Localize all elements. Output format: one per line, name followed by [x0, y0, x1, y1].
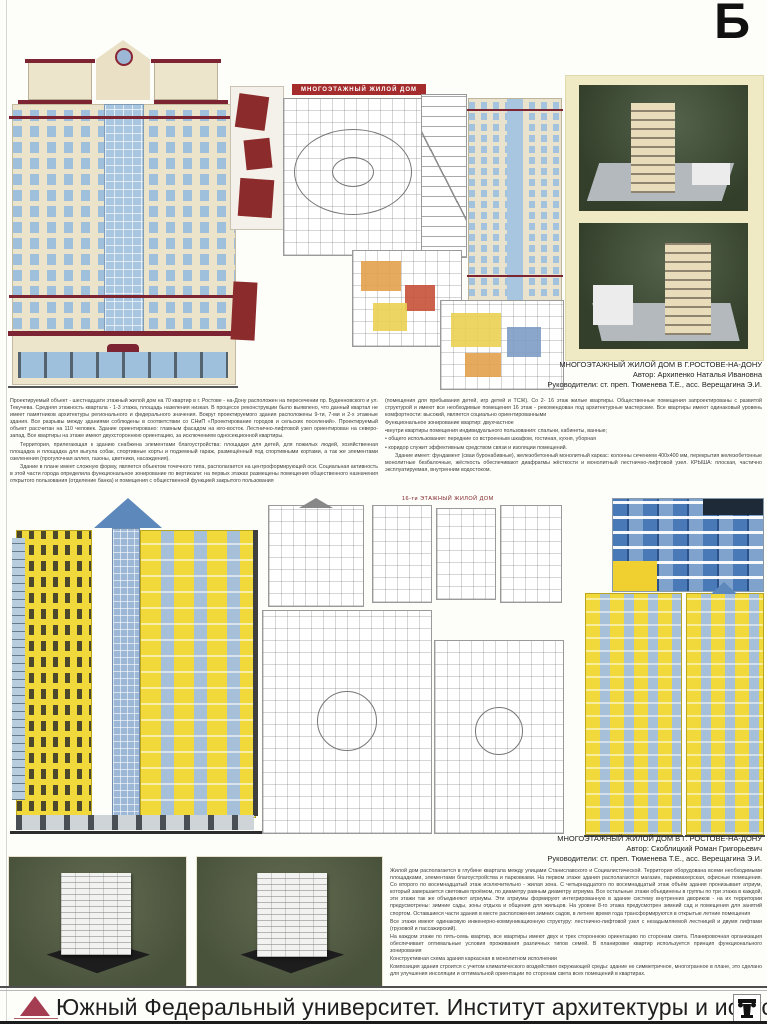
plan-patch-yellow [373, 303, 407, 331]
paragraph: Здание имеет: фундамент (сваи буронабивн… [385, 453, 762, 474]
red-band-upper [9, 116, 237, 119]
right-tower-facade [140, 530, 256, 818]
shadow-edge [253, 530, 258, 816]
secondary-glass-shaft [507, 99, 523, 311]
atrium-circle [475, 707, 523, 755]
left-tower-facade [16, 530, 92, 818]
model-tower [61, 873, 131, 955]
project1-description-col2: (помещения для пребывания детей, игр дет… [385, 398, 762, 475]
site-plan-drawing [230, 86, 284, 230]
facade-fragment-photo [612, 498, 764, 592]
bullet-item: • коридор служит эффективным средством с… [385, 445, 762, 452]
typical-floor-plan-drawing [283, 98, 423, 256]
paragraph: Композиция здания строится с учетом клим… [390, 964, 762, 978]
bullet-item: • общего использования: передние со встр… [385, 436, 762, 443]
balcony-stack [12, 538, 25, 800]
project1-description-col1: Проектируемый объект - шестнадцати этажн… [10, 398, 378, 486]
small-plan-drawing [436, 508, 496, 600]
red-band [467, 109, 563, 111]
entrance-awning [107, 344, 139, 352]
project2-main-elevation-drawing [12, 498, 258, 834]
paragraph: Жилой дом располагается в глубине кварта… [390, 868, 762, 918]
building-section-drawing [268, 505, 364, 607]
elevation-left-wing [28, 62, 92, 100]
footer-university-title: Южный Федеральный университет. Институт … [56, 994, 767, 1021]
paragraph: Функциональное зонирование квартир: двух… [385, 420, 762, 427]
central-glass-shaft [112, 528, 140, 820]
detail-fragment-red [230, 281, 257, 340]
sfu-logo-icon [20, 996, 50, 1016]
model-tower [257, 873, 327, 957]
model-tower [631, 103, 675, 193]
red-band [467, 275, 563, 277]
elevation-right-wing [154, 62, 218, 100]
scan-edge-line [6, 0, 7, 1024]
project1-main-elevation-drawing [12, 40, 234, 390]
plan-patch-red [405, 285, 435, 311]
site-plan-block [235, 93, 269, 131]
model-low-block [593, 285, 633, 325]
base-canopy [8, 331, 238, 336]
glass-pyramid-roof [94, 498, 162, 528]
architecture-institute-icon [733, 994, 761, 1022]
paragraph: Территория, прилегающая к зданию снабжен… [10, 442, 378, 463]
section-roof-triangle [299, 498, 333, 508]
glass-pyramid-roof [711, 582, 737, 594]
plan-core-outline [332, 157, 374, 187]
presentation-board: Б МНОГОЭТАЖНЫЙ ЖИЛОЙ ДОМ [0, 0, 767, 1024]
paragraph: Все этажи имеют одинаковую инженерно-ком… [390, 919, 762, 933]
fragment-yellow-wall [613, 561, 657, 591]
project2-title: МНОГОЭТАЖНЫЙ ЖИЛОЙ ДОМ В Г. РОСТОВЕ-НА-Д… [362, 834, 762, 844]
stair-section-drawing [421, 94, 467, 258]
atrium-circle [317, 691, 377, 751]
model-tower [665, 243, 711, 335]
project2-model-photo-left [8, 856, 187, 987]
project2-supervisors: Руководители: ст. преп. Тюменева Т.Е., а… [362, 854, 762, 864]
paragraph: Конструктивная схема здания каркасная в … [390, 956, 762, 963]
facade-emblem [115, 48, 133, 66]
ground-floor-strip [16, 815, 254, 830]
ground-line [10, 831, 262, 834]
model-photo-top [579, 85, 748, 211]
footer-divider-light [0, 990, 767, 991]
project2-model-photo-right [196, 856, 383, 987]
storefront-glazing [18, 352, 228, 378]
project2-description: Жилой дом располагается в глубине кварта… [390, 868, 762, 979]
model-low-block [692, 163, 730, 185]
project2-caption: МНОГОЭТАЖНЫЙ ЖИЛОЙ ДОМ В Г. РОСТОВЕ-НА-Д… [362, 834, 762, 863]
project1-model-photos-panel [565, 75, 764, 361]
bullet-item: •внутри квартиры помещения индивидуально… [385, 428, 762, 435]
paragraph: Здание в плане имеет сложную форму, явля… [10, 464, 378, 485]
plan-patch-yellow [451, 313, 501, 347]
project1-caption: МНОГОЭТАЖНЫЙ ЖИЛОЙ ДОМ В Г.РОСТОВЕ-НА-ДО… [362, 360, 762, 389]
red-band-lower [9, 295, 237, 298]
side-elevation-drawing-1 [585, 593, 682, 835]
paragraph: На каждом этаже по пять-семь квартир, вс… [390, 934, 762, 955]
paragraph: (помещения для пребывания детей, игр дет… [385, 398, 762, 419]
side-elevation-drawing-2 [686, 593, 764, 835]
site-plan-block [244, 138, 273, 171]
plan-patch-orange [361, 261, 401, 291]
ground-line [8, 386, 238, 388]
column-capital-glyph [734, 995, 760, 1021]
paragraph: Проектируемый объект - шестнадцати этажн… [10, 398, 378, 441]
floor-plan-large-2 [434, 640, 564, 834]
wing-cornice [25, 59, 95, 63]
fragment-dark-band [703, 499, 763, 515]
project2-plans-header: 16-ти ЭТАЖНЫЙ ЖИЛОЙ ДОМ [402, 496, 494, 502]
project1-supervisors: Руководители: ст. преп. Тюменева Т.Е., а… [362, 380, 762, 390]
model-photo-bottom [579, 223, 748, 349]
central-glass-shaft [104, 104, 144, 335]
floor-plan-large-1 [262, 610, 432, 834]
secondary-elevation-drawing [468, 98, 562, 312]
wing-cornice [151, 59, 221, 63]
footer-divider-dark [0, 986, 767, 988]
project1-author: Автор: Архипенко Наталья Ивановна [362, 370, 762, 380]
project2-author: Автор: Скоблицкий Роман Григорьевич [362, 844, 762, 854]
board-index-letter: Б [714, 0, 751, 50]
project1-title: МНОГОЭТАЖНЫЙ ЖИЛОЙ ДОМ В Г.РОСТОВЕ-НА-ДО… [362, 360, 762, 370]
plan-patch-blue [507, 327, 541, 357]
site-plan-block [238, 178, 275, 218]
project1-plans-header: МНОГОЭТАЖНЫЙ ЖИЛОЙ ДОМ [292, 84, 426, 95]
small-plan-drawing [500, 505, 562, 603]
small-plan-drawing [372, 505, 432, 603]
